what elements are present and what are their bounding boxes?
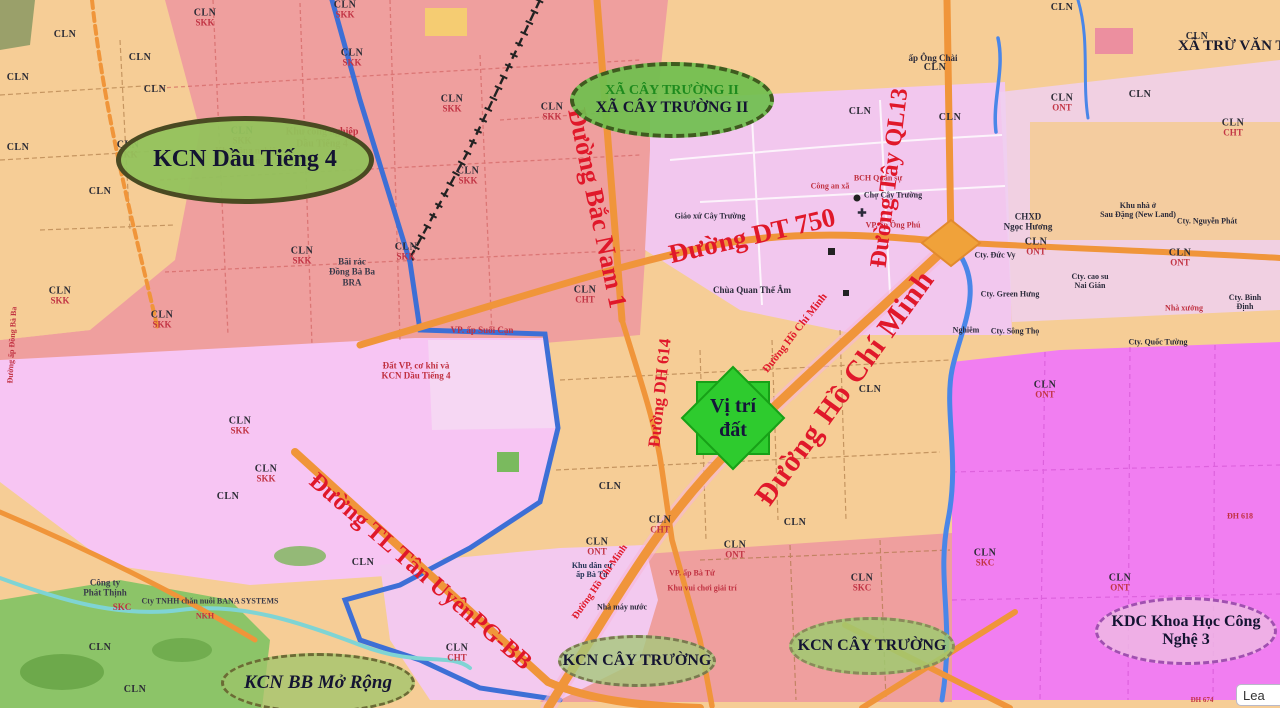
site-marker-line2: đất	[719, 418, 747, 442]
leaflet-attribution-text: Lea	[1243, 688, 1265, 703]
site-marker-label: Vị trí đất	[685, 370, 781, 466]
map-canvas[interactable]: CLNSKKCLNSKKCLNSKKCLNSKKCLNSKKCLNSKKCLNS…	[0, 0, 1280, 720]
map-base-layer[interactable]	[0, 0, 1280, 708]
site-marker-line1: Vị trí	[710, 394, 756, 418]
leaflet-attribution[interactable]: Lea	[1236, 684, 1280, 706]
map-viewport[interactable]: CLNSKKCLNSKKCLNSKKCLNSKKCLNSKKCLNSKKCLNS…	[0, 0, 1280, 708]
commune-name-label: XÃ TRỪ VĂN THỐ	[1178, 38, 1280, 55]
site-location-marker[interactable]: Vị trí đất	[685, 370, 781, 466]
